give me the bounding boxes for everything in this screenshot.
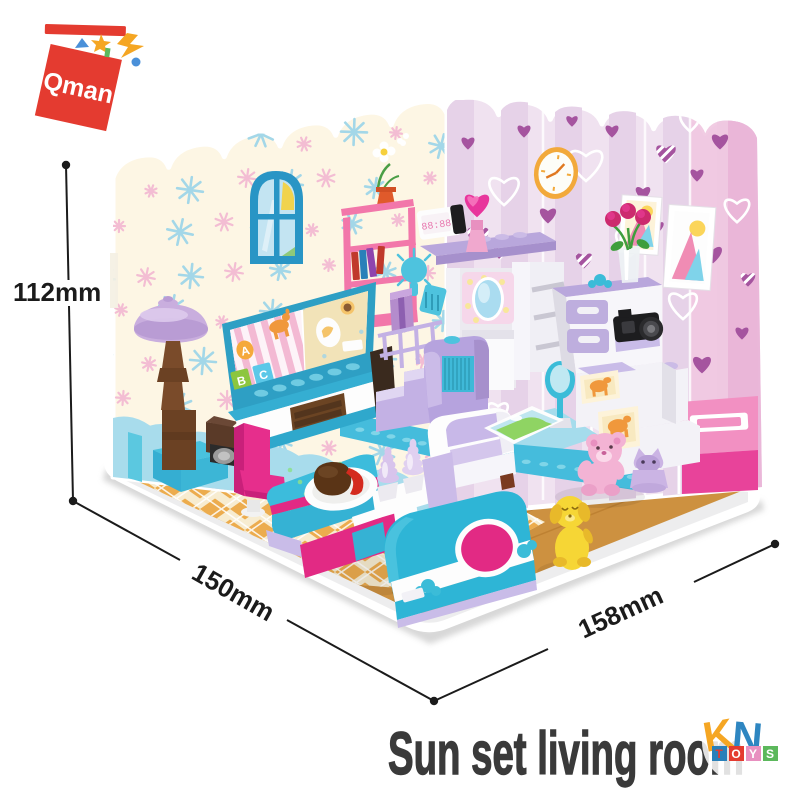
svg-text:112mm: 112mm (13, 277, 101, 307)
svg-text:O: O (731, 747, 740, 761)
svg-text:Sun set living room: Sun set living room (388, 720, 744, 787)
svg-text:T: T (715, 747, 723, 761)
svg-text:S: S (766, 747, 774, 761)
svg-text:Y: Y (749, 747, 757, 761)
